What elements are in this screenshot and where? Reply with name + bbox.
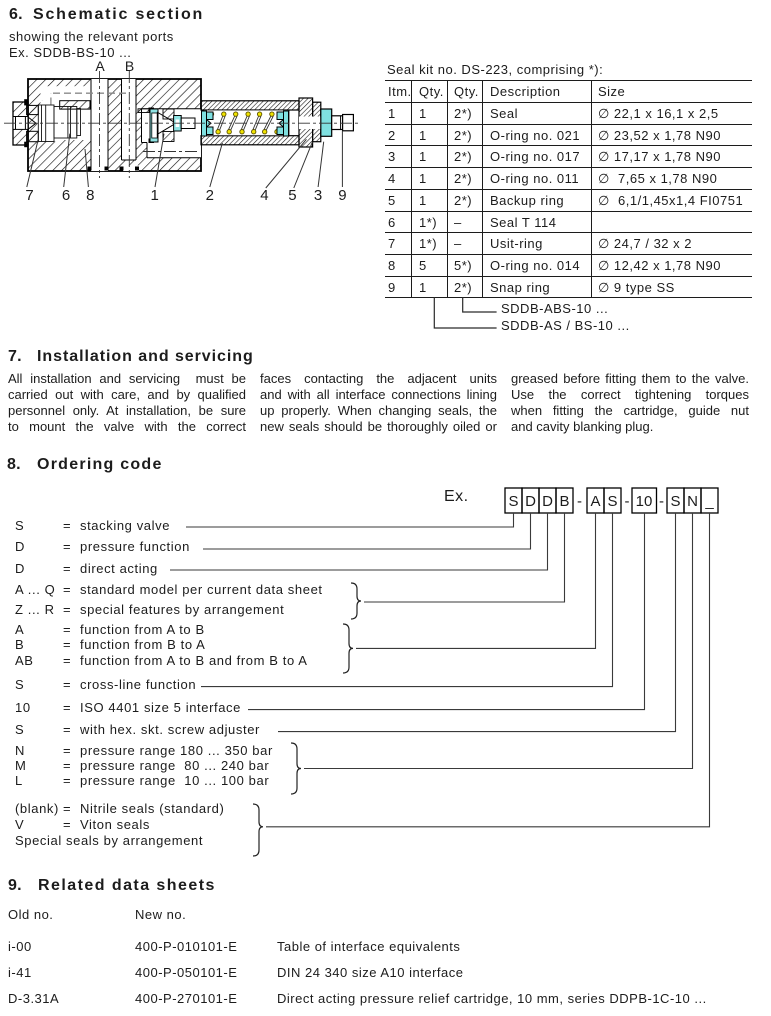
svg-text:-: -	[659, 493, 664, 510]
svg-text:A: A	[590, 493, 600, 510]
svg-text:S: S	[607, 493, 617, 510]
svg-text:N: N	[687, 493, 698, 510]
svg-text:D: D	[542, 493, 553, 510]
svg-text:S: S	[508, 493, 518, 510]
svg-text:-: -	[625, 493, 630, 510]
svg-text:S: S	[670, 493, 680, 510]
svg-text:10: 10	[636, 493, 653, 510]
svg-text:_: _	[704, 493, 714, 510]
svg-text:B: B	[559, 493, 569, 510]
svg-text:-: -	[577, 493, 582, 510]
svg-text:D: D	[525, 493, 536, 510]
